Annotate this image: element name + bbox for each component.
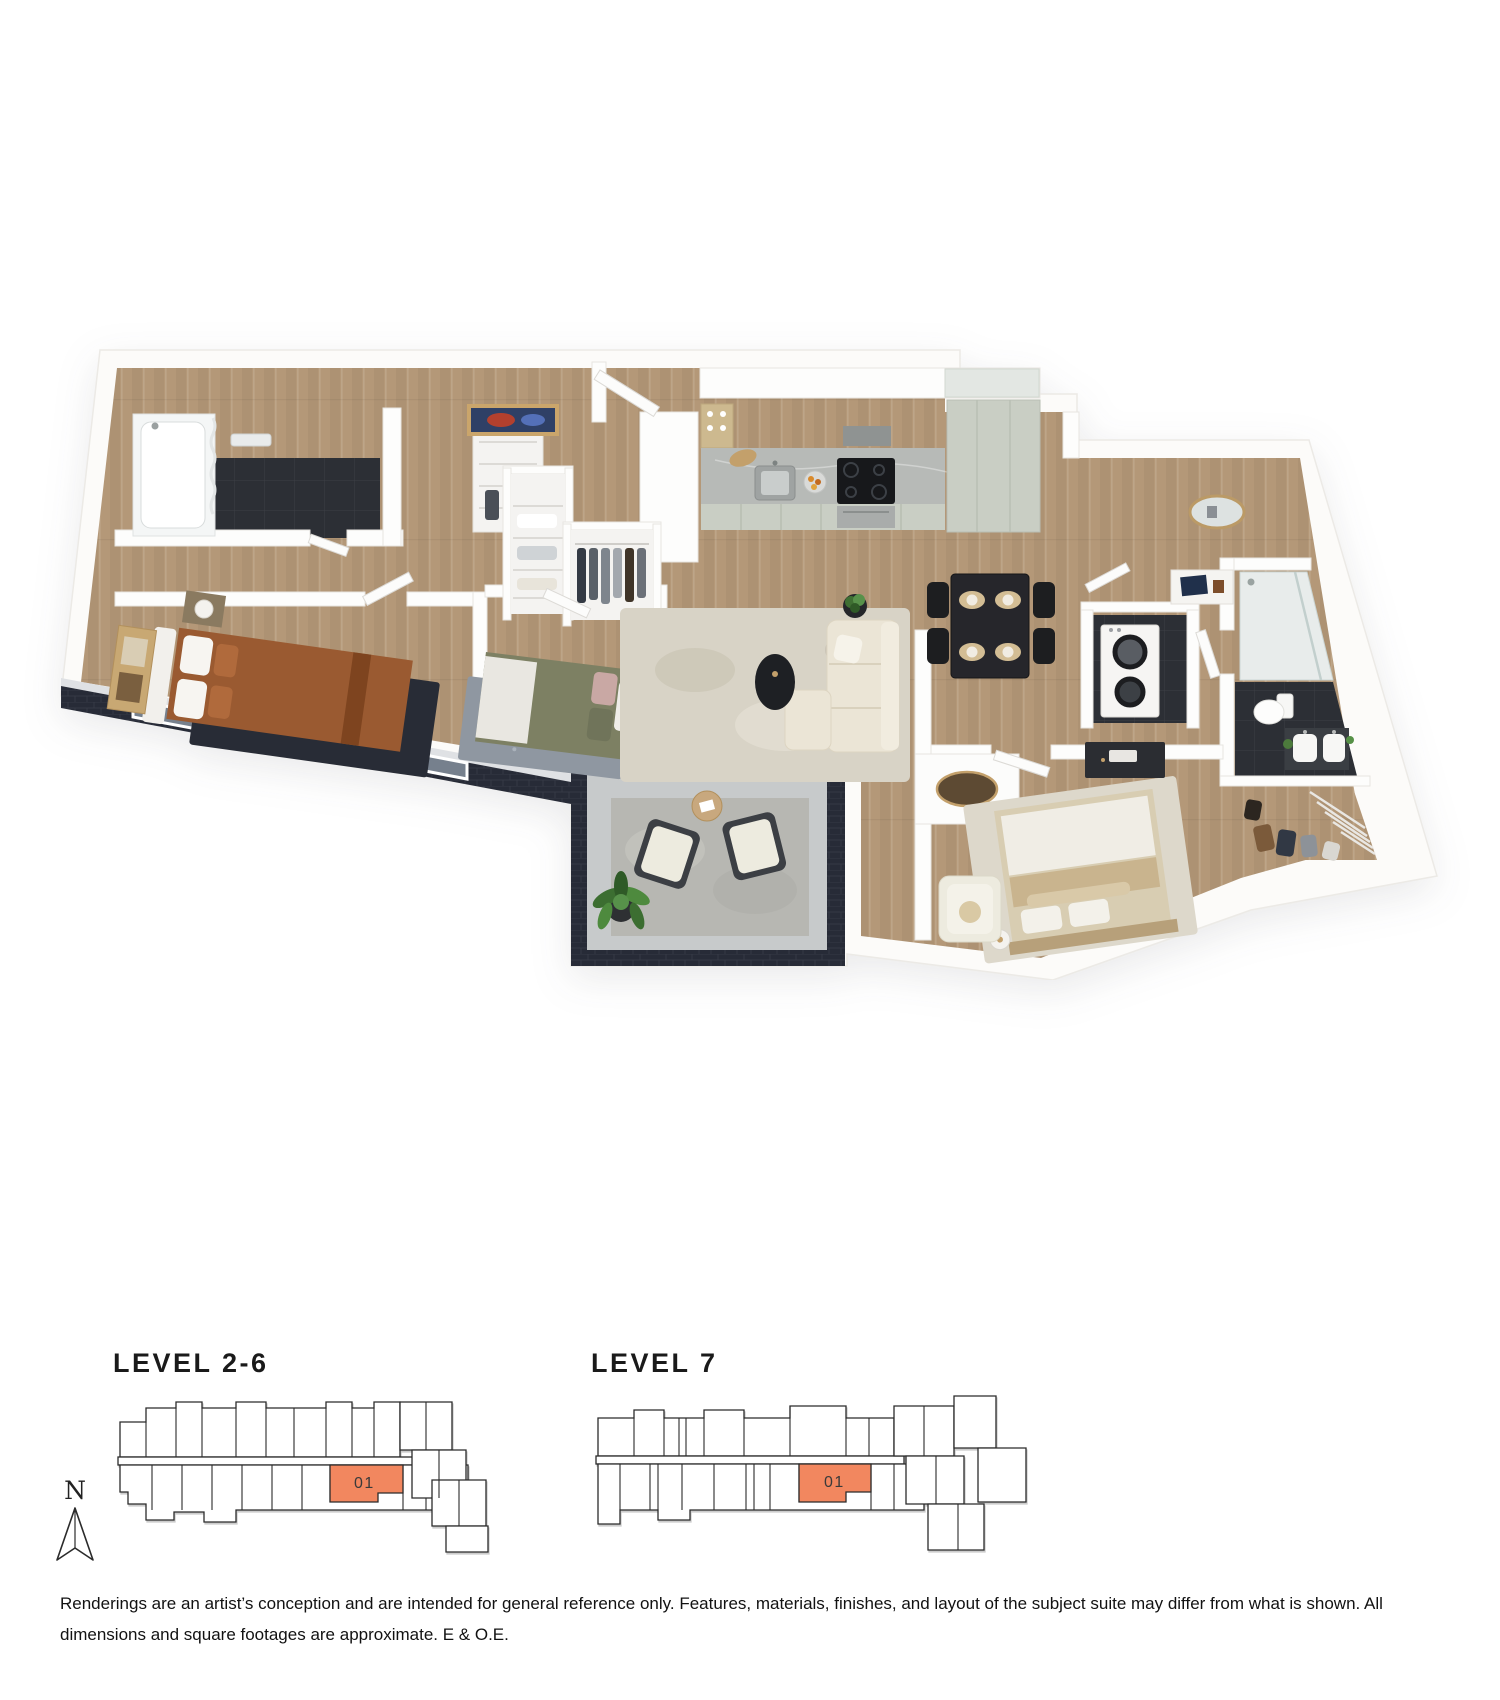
- living-area: [620, 594, 910, 782]
- dining-chair: [1033, 628, 1055, 664]
- shower-head: [152, 423, 159, 430]
- floor-plan-rendering: [55, 330, 1445, 980]
- north-arrow-icon: [53, 1504, 97, 1566]
- pillow: [207, 685, 233, 720]
- keyplan-level-2-6: 01: [116, 1392, 501, 1557]
- dining-table: [951, 574, 1029, 678]
- pillow: [173, 678, 208, 720]
- unit-01-label: 01: [824, 1474, 845, 1491]
- disclaimer-text: Renderings are an artist’s conception an…: [60, 1588, 1452, 1650]
- entry-art: [467, 404, 559, 436]
- keyplan-title-level-2-6: LEVEL 2-6: [113, 1348, 269, 1379]
- pantry-cabinets: [947, 400, 1040, 532]
- pillow: [591, 671, 619, 706]
- dresser: [1085, 742, 1165, 778]
- unit-01-label: 01: [354, 1475, 375, 1492]
- oven-front: [837, 506, 895, 528]
- vanity: [1283, 728, 1354, 770]
- north-arrow: N: [53, 1478, 97, 1571]
- range-hood: [843, 426, 891, 446]
- ensuite-tile-floor: [215, 458, 380, 538]
- pillow: [179, 635, 214, 677]
- shower-head: [1248, 579, 1255, 586]
- keyplan-level-7: 01: [594, 1392, 1044, 1557]
- dining-chair: [1033, 582, 1055, 618]
- cabinet-fronts: [701, 504, 945, 530]
- towel-rack: [231, 434, 271, 446]
- kitchen-sink: [755, 461, 795, 501]
- dining-chair: [927, 628, 949, 664]
- cooktop: [837, 458, 895, 504]
- pillow: [213, 643, 239, 678]
- coffee-table: [755, 654, 795, 710]
- north-label: N: [53, 1478, 97, 1504]
- accent-chair: [939, 876, 1001, 942]
- balcony: [590, 791, 809, 936]
- dining-chair: [927, 582, 949, 618]
- open-shelf: [701, 404, 733, 448]
- laptop: [1180, 575, 1208, 597]
- laundry-closet: [1101, 625, 1159, 717]
- bathtub: [141, 422, 205, 528]
- console-oval: [937, 772, 997, 806]
- keyplan-title-level-7: LEVEL 7: [591, 1348, 718, 1379]
- pillow: [833, 634, 864, 665]
- balcony-parapet-right: [827, 758, 845, 966]
- pillow: [586, 707, 614, 742]
- balcony-parapet-left: [571, 758, 587, 966]
- balcony-parapet-bottom: [571, 950, 845, 966]
- pillow: [959, 901, 981, 923]
